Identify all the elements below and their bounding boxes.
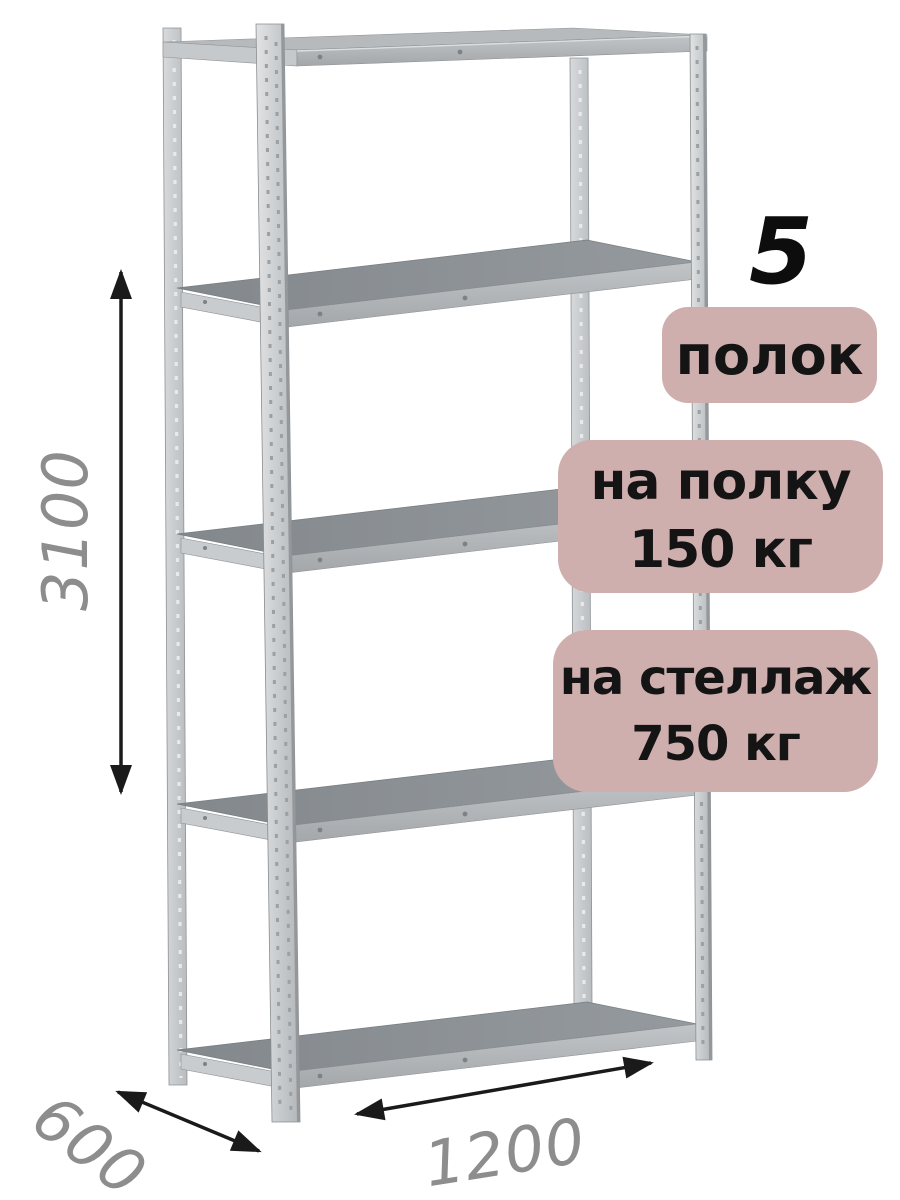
rack-shelf-2 — [177, 240, 697, 327]
rack-load-line1: на стеллаж — [560, 645, 872, 711]
shelving-rack-illustration — [0, 0, 900, 1200]
product-image: 3100 600 1200 5 полок на полку 150 кг на… — [0, 0, 900, 1200]
shelf-load-line1: на полку — [590, 449, 850, 517]
rack-post-front-left — [256, 24, 300, 1122]
rack-shelf-top — [163, 28, 707, 66]
rack-post-back-left — [163, 28, 187, 1085]
rack-shelf-5 — [177, 1002, 697, 1089]
shelf-count-badge: полок — [662, 307, 877, 403]
rack-load-line2: 750 кг — [631, 711, 800, 777]
shelf-count-label: полок — [676, 324, 864, 387]
height-dimension-label: 3100 — [32, 448, 100, 612]
rack-load-badge: на стеллаж 750 кг — [553, 630, 878, 792]
shelf-load-line2: 150 кг — [629, 517, 812, 585]
shelf-load-badge: на полку 150 кг — [558, 440, 883, 593]
shelf-count-number: 5 — [724, 204, 838, 301]
